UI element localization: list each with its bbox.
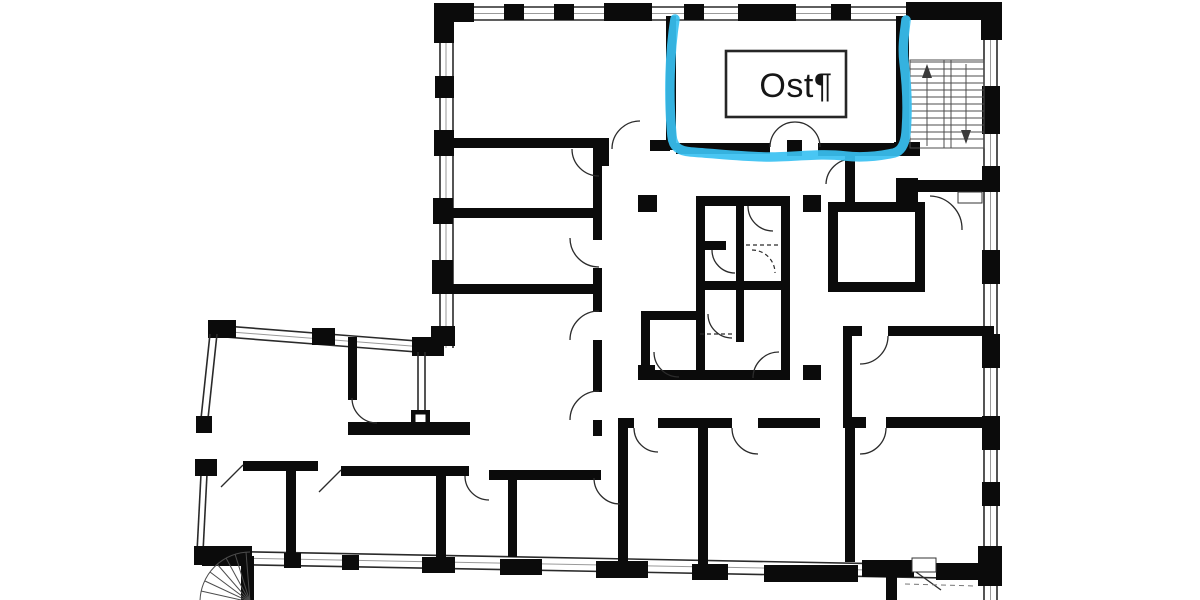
interior-walls — [243, 16, 994, 600]
stair-up-arrow — [922, 64, 932, 146]
exit-door-gap — [912, 558, 936, 572]
staircase-upper-right — [910, 60, 984, 148]
room-label-text: Ost¶ — [759, 67, 832, 105]
wc-block — [641, 196, 790, 380]
floor-plan-svg: Ost¶ — [0, 0, 1200, 600]
floor-plan-page: Ost¶ — [0, 0, 1200, 600]
elevator-shaft — [833, 207, 920, 287]
room-label-box[interactable]: Ost¶ — [726, 51, 846, 117]
